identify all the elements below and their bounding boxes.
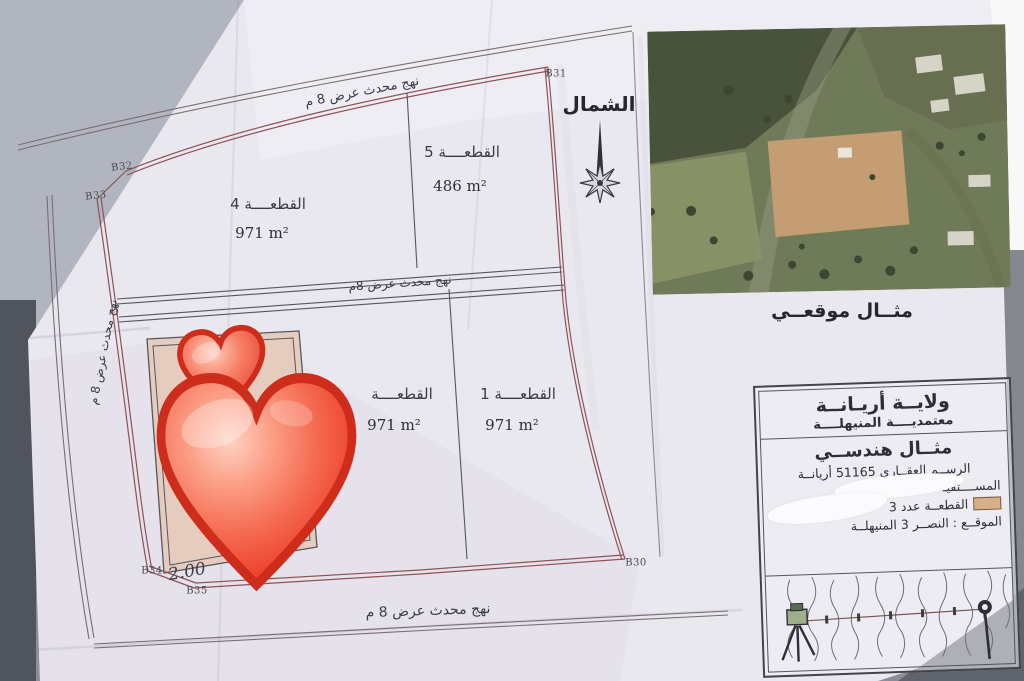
boundary-marker-b30: B30: [625, 558, 647, 569]
plot4-area: 971 m²: [235, 224, 289, 242]
inset-caption: مثــال موقعــي: [771, 300, 913, 322]
compass-north-arrow: [580, 120, 620, 203]
title-block: ولايــة أريـانــة معتمديــــة المنيهلـــ…: [753, 377, 1021, 678]
plot-number-line: القطعــة عدد 3: [889, 497, 969, 515]
plot5-area: 486 m²: [433, 177, 487, 195]
boundary-marker-b32: B32: [111, 160, 134, 173]
boundary-marker-b31: B31: [545, 69, 567, 80]
plot1-name: القطعــــة 1: [480, 385, 556, 403]
title-block-survey-drawing: [766, 567, 1015, 672]
plot3-legend-swatch: [973, 496, 1001, 510]
sight-line: [791, 609, 985, 622]
satellite-inset-image: [647, 24, 1010, 294]
plot5-name: القطعــــة 5: [424, 143, 500, 161]
title-block-header: ولايــة أريـانــة معتمديــــة المنيهلـــ…: [759, 383, 1007, 440]
plot1-area: 971 m²: [485, 416, 539, 434]
total-station-instrument: [781, 603, 815, 662]
boundary-marker-b33: B33: [85, 189, 108, 202]
location-line: الموقــع : النصــر 3 المنيهلــة: [851, 513, 1003, 533]
sight-line-ticks: [825, 607, 956, 624]
plot4-name: القطعــــة 4: [230, 195, 306, 213]
two-hearts-emoji-sticker: [130, 318, 390, 598]
title-block-body: مثــال هندســي الرســم العقــاري 51165 أ…: [761, 431, 1012, 576]
north-label: الشمال: [563, 92, 636, 116]
prism-pole: [978, 600, 994, 659]
big-heart: [161, 378, 352, 585]
photographed-land-plan: الشمال B31 B32 B33 B34 B35 B30 نهج محدث …: [0, 0, 1024, 681]
contour-lines: [786, 570, 1011, 662]
